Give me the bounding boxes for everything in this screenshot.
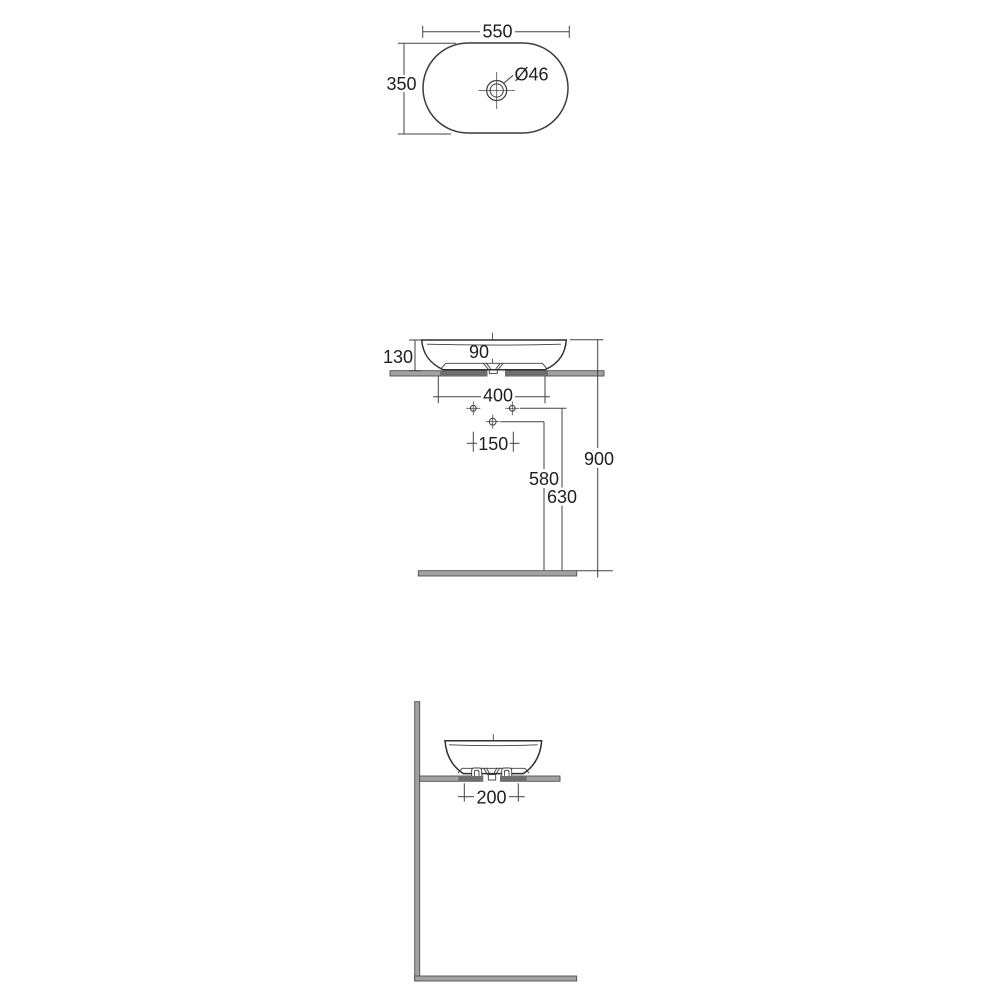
dim-hole-span-label: 400 [483, 386, 513, 406]
dim-width-label: 550 [482, 22, 512, 42]
technical-drawing-page: Ø46 550 350 [0, 0, 1000, 1000]
dim-hole-pitch-label: 150 [478, 434, 508, 454]
dim-trap-height-label: 580 [529, 469, 559, 489]
washbasin-technical-drawing: Ø46 550 350 [0, 0, 1000, 1000]
top-view: Ø46 550 350 [386, 22, 569, 135]
floor-side [415, 976, 577, 981]
dim-rim-height-label: 900 [584, 449, 614, 469]
countertop-dark-left [440, 371, 488, 376]
basin-plan-outline [423, 43, 568, 133]
dim-depth-label: 350 [386, 74, 416, 94]
countertop-side-dark-left [458, 776, 483, 781]
dim-holes-height-label: 630 [547, 487, 577, 507]
countertop-dark-right [505, 371, 548, 376]
dim-ledge-offset-label: 200 [476, 788, 506, 808]
drain-stub-side [488, 775, 495, 780]
drain-diameter-label: Ø46 [515, 65, 549, 85]
front-view: 90 130 400 [383, 333, 614, 578]
wall-side [415, 702, 420, 981]
side-view: 200 [415, 702, 577, 981]
dim-basin-height-label: 130 [383, 347, 413, 367]
floor-front [418, 571, 576, 576]
countertop-side-dark-right [500, 776, 527, 781]
dim-drain-label: 90 [469, 342, 489, 362]
